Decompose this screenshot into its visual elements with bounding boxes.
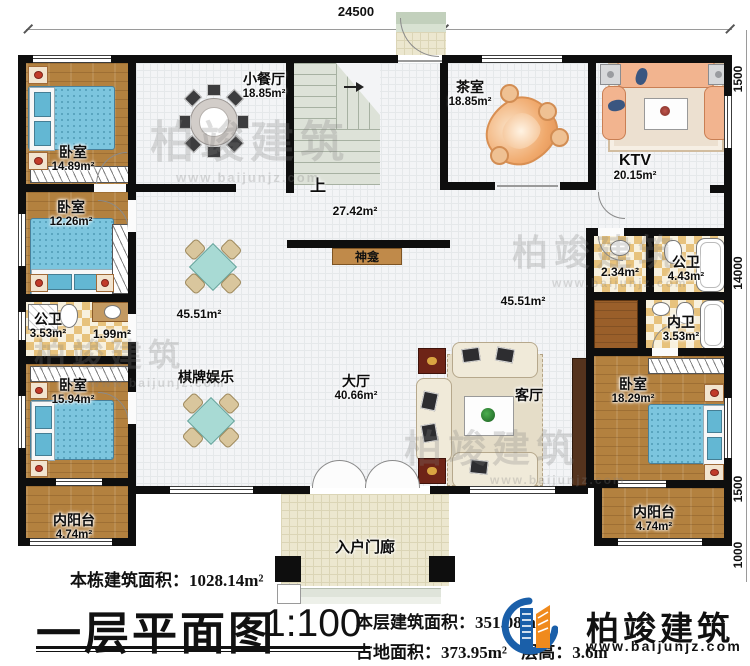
nightstand [704,464,724,481]
ktv-sofa [616,60,716,88]
dining-chair [207,84,221,96]
brand-url: www.baijunjz.com [586,638,742,654]
tv-cabinet [572,358,587,486]
tea-stool [500,84,519,103]
total-area-line: 本栋建筑面积：1028.14m² [70,566,264,591]
dimension-right-1500b: 1500 [731,457,745,521]
plan-scale: 1:100 [264,602,362,646]
porch-step [289,588,441,597]
wall [286,55,398,63]
title-underline-thin [36,651,370,652]
toilet [60,304,78,328]
porch-column [275,556,301,582]
dimension-line-right [746,30,747,582]
window [724,398,732,458]
dining-chair [237,115,249,129]
dining-chair [179,115,191,129]
window [18,214,26,266]
speaker [600,64,621,85]
wall [594,488,602,538]
wall [287,240,450,248]
bed [28,86,115,150]
shrine: 神龛 [332,248,402,265]
sink [610,240,630,256]
shrine-label: 神龛 [355,248,379,265]
wall [440,63,448,190]
window [30,538,112,546]
door-opening [128,392,136,424]
bathtub [700,300,726,350]
dimension-right-1500a: 1500 [731,47,745,111]
dining-chair [207,146,221,158]
dimension-right-1000: 1000 [731,523,745,587]
dimension-line-top [26,29,732,30]
floor-balcony-right [602,488,724,538]
stairs-arrow-head [356,82,364,92]
cushion [461,347,481,363]
nightstand [30,274,48,292]
wall [18,294,136,302]
window [18,396,26,448]
door-opening [128,314,136,342]
brand-logo-icon [500,596,558,660]
closet-right [594,300,638,352]
land-area-line: 占地面积：373.95m² 层高：3.6m [356,638,608,663]
toilet [676,302,694,324]
wall [588,63,596,190]
window [170,486,253,494]
tea-stool [550,128,569,147]
cushion [495,347,515,364]
wall [592,292,732,300]
nightstand [96,274,114,292]
wall [710,185,732,193]
bed [648,404,726,464]
nightstand [28,66,48,84]
window [618,538,702,546]
door-threshold [398,60,442,62]
sink [104,305,121,319]
sink [652,302,670,316]
floor-porch [281,494,449,586]
wardrobe [648,358,726,374]
cushion [469,459,488,475]
nightstand [30,460,48,477]
cushion [421,423,439,443]
side-table [418,458,446,484]
floor-balcony-left [26,486,128,538]
plant [481,408,495,422]
slider-door-tea [497,185,558,187]
plan-title: 一层平面图 [36,597,276,662]
wall [128,55,136,546]
brand-logo-svg [500,596,558,660]
side-table [418,348,446,374]
toilet [664,240,682,264]
ktv-sofa [602,86,626,140]
door-opening [652,348,678,356]
wall [136,184,236,192]
porch-column-base [277,584,301,604]
wall [440,182,495,190]
window [482,55,562,63]
window [18,312,26,340]
wall [646,236,654,294]
wall [286,55,294,193]
wardrobe [30,366,130,382]
shower [28,304,58,330]
wall [586,228,594,488]
nightstand [28,152,48,170]
dimension-top: 24500 [316,4,396,19]
title-underline [36,646,370,649]
tea-stool [490,146,509,165]
bathtub [696,238,725,292]
wall [18,356,136,364]
door-opening [598,228,624,236]
nightstand [704,384,724,402]
dimension-right-14000: 14000 [731,241,745,305]
tea-stool [538,102,557,121]
porch-column [429,556,455,582]
door-opening [128,200,136,232]
nightstand [30,382,48,399]
door-opening [94,184,126,192]
window [33,55,111,63]
slider-door [618,480,666,488]
wall [638,300,646,350]
sofa [452,452,538,488]
floor-plan-page: 24500 1500 14000 1500 1000 [0,0,750,666]
flowers [660,106,670,116]
sofa [416,378,452,462]
window [470,486,555,494]
slider-door [56,478,102,486]
